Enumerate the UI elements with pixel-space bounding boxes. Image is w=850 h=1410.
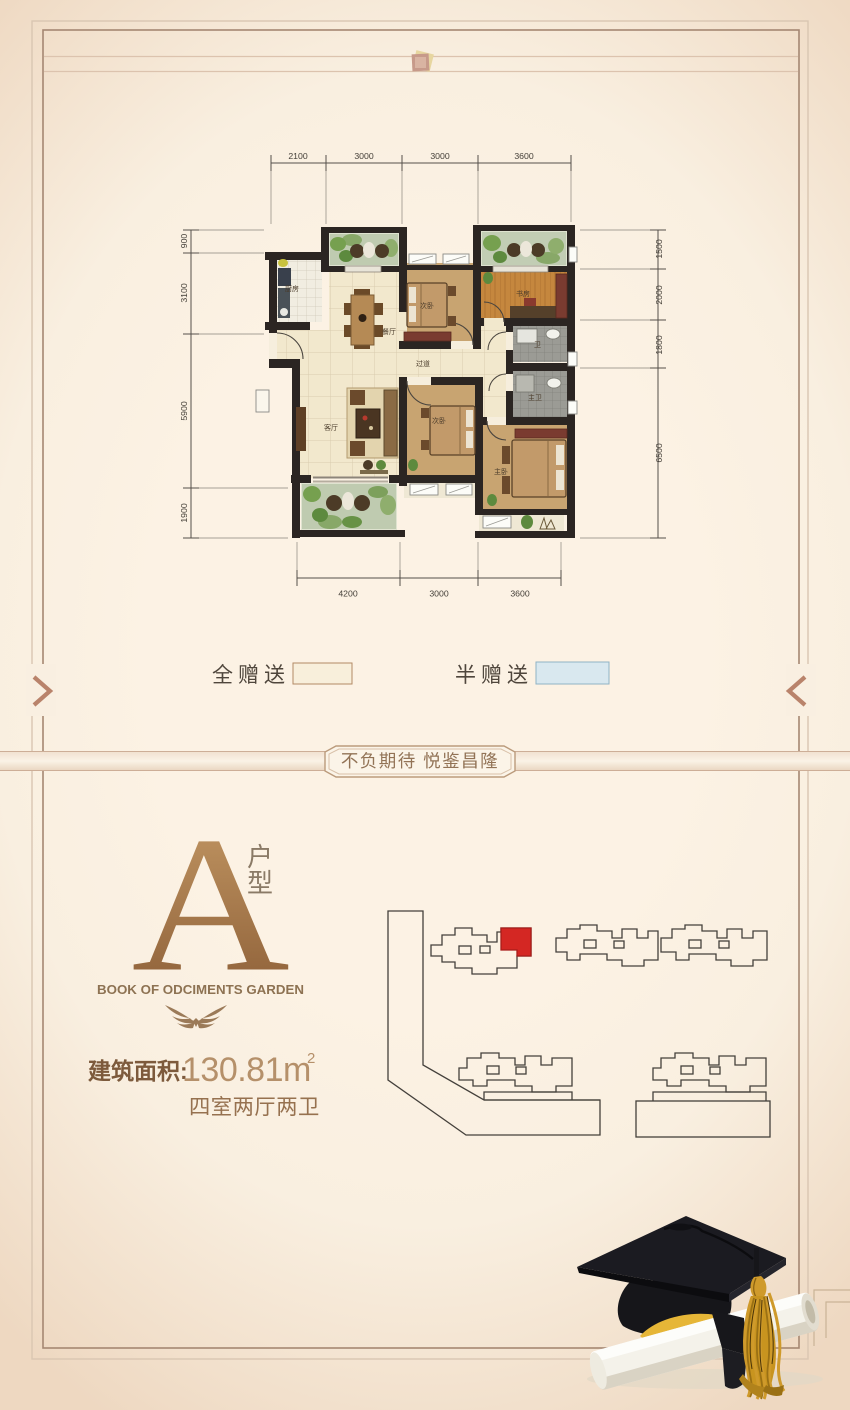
svg-text:130.81m: 130.81m bbox=[182, 1051, 311, 1089]
svg-text:型: 型 bbox=[247, 868, 273, 898]
svg-text:四室两厅两卫: 四室两厅两卫 bbox=[189, 1095, 320, 1119]
svg-text:BOOK OF ODCIMENTS GARDEN: BOOK OF ODCIMENTS GARDEN bbox=[97, 982, 304, 997]
svg-text:半赠送: 半赠送 bbox=[455, 664, 533, 687]
svg-text:不负期待 悦鉴昌隆: 不负期待 悦鉴昌隆 bbox=[341, 751, 499, 771]
svg-text:建筑面积:: 建筑面积: bbox=[88, 1058, 188, 1084]
svg-text:A: A bbox=[132, 797, 290, 1012]
svg-text:2: 2 bbox=[307, 1050, 315, 1067]
svg-text:全赠送: 全赠送 bbox=[212, 664, 290, 687]
